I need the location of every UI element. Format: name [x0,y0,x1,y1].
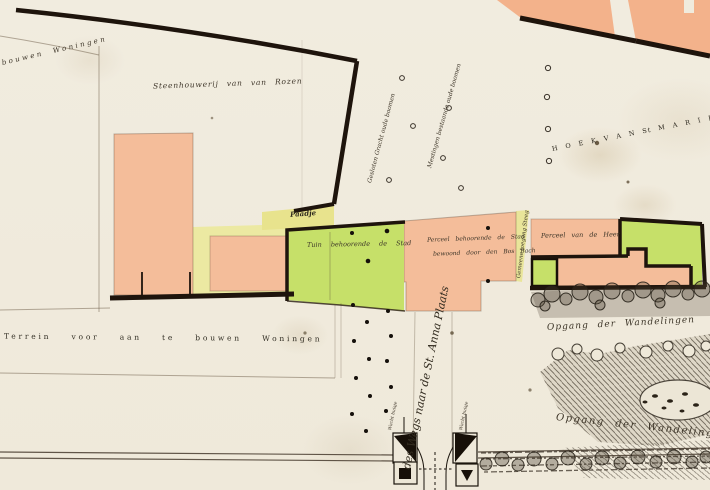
historical-map-canvas: bouwen Woningen Steenhouwerij van van Ro… [0,0,710,490]
tree-marker-circles [387,65,552,190]
label-paadje: Paadje [290,209,316,218]
parcels [114,0,710,311]
label-perceel-heer: Perceel van de Heer [541,231,620,239]
vegetation [480,281,710,471]
label-tuin-stad: Tuin behoorende de Stad [307,240,411,248]
